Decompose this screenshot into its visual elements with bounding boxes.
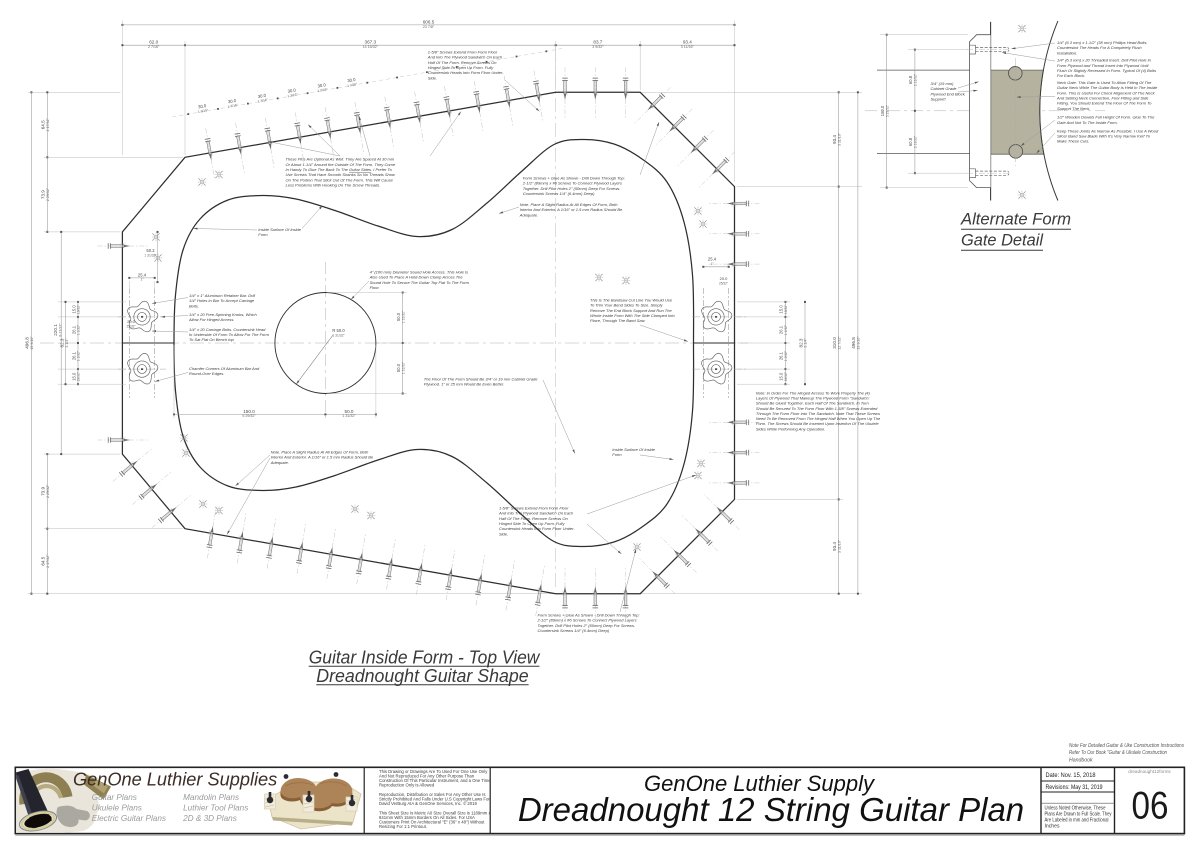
svg-text:(30.0): (30.0) [622, 591, 624, 597]
svg-text:19/32": 19/32" [77, 304, 81, 314]
svg-text:Note: In Order For The Hinged: Note: In Order For The Hinged Access To … [756, 390, 881, 431]
svg-text:496.8: 496.8 [851, 337, 856, 349]
svg-text:3 11/16": 3 11/16" [681, 45, 695, 49]
svg-text:(30.0): (30.0) [561, 591, 563, 597]
svg-text:15.0: 15.0 [71, 305, 76, 314]
svg-text:1 31/32": 1 31/32" [332, 334, 345, 338]
svg-text:20.0: 20.0 [127, 319, 136, 324]
svg-text:1 1/32": 1 1/32" [77, 350, 81, 361]
svg-text:3 1/4": 3 1/4" [804, 338, 808, 348]
svg-text:Dreadnought 12 String Guitar P: Dreadnought 12 String Guitar Plan [518, 791, 1024, 828]
svg-text:1 1/32": 1 1/32" [77, 324, 81, 335]
svg-text:(30.0): (30.0) [120, 436, 126, 438]
svg-text:25.4: 25.4 [708, 256, 717, 261]
svg-text:60.8: 60.8 [908, 75, 913, 84]
svg-text:This Drawing or Drawings Are T: This Drawing or Drawings Are To Used For… [379, 769, 492, 829]
svg-text:150.0: 150.0 [243, 409, 255, 414]
svg-text:496.8: 496.8 [25, 337, 30, 349]
svg-text:367.3: 367.3 [365, 40, 377, 45]
svg-text:93.4: 93.4 [832, 135, 837, 144]
svg-text:73.9: 73.9 [41, 190, 46, 199]
svg-text:1 1/32": 1 1/32" [784, 324, 788, 335]
svg-text:Handbook: Handbook [1069, 757, 1093, 763]
svg-text:606.5: 606.5 [423, 19, 435, 24]
svg-text:62.0: 62.0 [149, 40, 158, 45]
svg-text:5 29/32": 5 29/32" [885, 104, 889, 117]
svg-text:1 31/32": 1 31/32" [342, 414, 356, 418]
svg-text:3 11/16": 3 11/16" [837, 539, 841, 553]
svg-text:(30.0): (30.0) [597, 90, 599, 96]
svg-text:25/32": 25/32" [719, 282, 728, 286]
svg-text:2 29/32": 2 29/32" [46, 484, 50, 498]
svg-text:15.0: 15.0 [71, 372, 76, 381]
svg-text:82.3: 82.3 [798, 338, 803, 347]
svg-text:26.1: 26.1 [779, 325, 784, 334]
svg-text:These Pins Are Optional As Wel: These Pins Are Optional As Well. They Ar… [286, 157, 396, 188]
svg-text:2 17/32": 2 17/32" [46, 117, 50, 131]
svg-text:5 29/32": 5 29/32" [242, 414, 256, 418]
svg-text:Note For Detailed Guitar & Uke: Note For Detailed Guitar & Uke Construct… [1069, 743, 1184, 749]
svg-text:(30.0): (30.0) [731, 454, 737, 456]
svg-text:3 11/16": 3 11/16" [837, 132, 841, 146]
svg-text:25.4: 25.4 [138, 272, 147, 277]
svg-text:2 13/32": 2 13/32" [914, 135, 918, 148]
svg-text:310.0: 310.0 [832, 337, 837, 349]
svg-text:(30.0): (30.0) [731, 236, 737, 238]
svg-text:(30.0): (30.0) [120, 242, 126, 244]
svg-text:2 29/32": 2 29/32" [46, 187, 50, 201]
svg-text:8 21/32": 8 21/32" [58, 323, 62, 337]
svg-text:(30.0): (30.0) [731, 205, 737, 207]
svg-text:83.7: 83.7 [593, 40, 602, 45]
svg-text:50.0: 50.0 [345, 409, 354, 414]
svg-text:15.0: 15.0 [779, 305, 784, 314]
svg-text:23 7/8": 23 7/8" [423, 25, 435, 29]
svg-text:93.4: 93.4 [683, 40, 692, 45]
svg-text:3 1/4": 3 1/4" [65, 338, 69, 348]
svg-text:19/32": 19/32" [784, 371, 788, 381]
svg-text:19 9/16": 19 9/16" [30, 336, 34, 350]
svg-text:64.5: 64.5 [41, 120, 46, 129]
svg-text:93.4: 93.4 [832, 542, 837, 551]
svg-text:GenOne Luthier Supplies: GenOne Luthier Supplies [73, 770, 277, 790]
svg-text:19/32": 19/32" [784, 304, 788, 314]
svg-text:2 13/32": 2 13/32" [914, 73, 918, 86]
svg-text:(30.0): (30.0) [731, 266, 737, 268]
svg-text:Refer To Our Book "Guitar & Uk: Refer To Our Book "Guitar & Ukulele Cons… [1069, 750, 1167, 756]
svg-text:1 31/32": 1 31/32" [401, 361, 405, 374]
svg-text:25/32": 25/32" [126, 325, 135, 329]
svg-text:150.0: 150.0 [880, 105, 885, 116]
svg-text:Dreadnought Guitar Shape: Dreadnought Guitar Shape [316, 665, 528, 686]
svg-text:3 9/32": 3 9/32" [592, 45, 604, 49]
svg-text:R 50.0: R 50.0 [332, 328, 345, 333]
svg-text:26.1: 26.1 [71, 351, 76, 360]
svg-text:2 7/16": 2 7/16" [148, 45, 160, 49]
svg-text:dreadnought12forms: dreadnought12forms [1128, 769, 1171, 774]
svg-text:19/32": 19/32" [77, 371, 81, 381]
svg-text:20.0: 20.0 [720, 276, 729, 281]
svg-text:(30.0): (30.0) [731, 424, 737, 426]
svg-text:73.9: 73.9 [41, 486, 46, 495]
svg-text:50.0: 50.0 [396, 312, 401, 321]
svg-text:2 17/32": 2 17/32" [46, 554, 50, 568]
svg-text:Inches: Inches [1045, 824, 1060, 830]
svg-text:Revisions: May 31, 2019: Revisions: May 31, 2019 [1046, 784, 1103, 791]
svg-text:82.3: 82.3 [60, 338, 65, 347]
svg-text:1 1/32": 1 1/32" [784, 350, 788, 361]
svg-text:12 7/32": 12 7/32" [837, 336, 841, 350]
svg-text:19 9/16": 19 9/16" [857, 336, 861, 350]
svg-text:26.1: 26.1 [71, 325, 76, 334]
svg-text:Alternate Form: Alternate Form [960, 210, 1071, 229]
svg-text:220.1: 220.1 [53, 324, 58, 336]
svg-text:26.1: 26.1 [779, 351, 784, 360]
svg-text:(30.0): (30.0) [627, 90, 629, 96]
svg-text:Gate Detail: Gate Detail [961, 231, 1044, 250]
svg-text:14 15/32": 14 15/32" [363, 45, 379, 49]
svg-text:50.0: 50.0 [396, 363, 401, 372]
svg-text:(30.0): (30.0) [592, 591, 594, 597]
svg-text:50.2: 50.2 [146, 248, 155, 253]
svg-text:64.5: 64.5 [41, 556, 46, 565]
svg-text:(30.0): (30.0) [567, 90, 569, 96]
svg-text:15.0: 15.0 [779, 372, 784, 381]
svg-text:1 31/32": 1 31/32" [401, 310, 405, 323]
svg-text:60.8: 60.8 [908, 137, 913, 146]
svg-text:Date: Nov. 15, 2018: Date: Nov. 15, 2018 [1046, 772, 1096, 779]
svg-text:06: 06 [1132, 785, 1169, 828]
svg-text:(30.0): (30.0) [731, 485, 737, 487]
